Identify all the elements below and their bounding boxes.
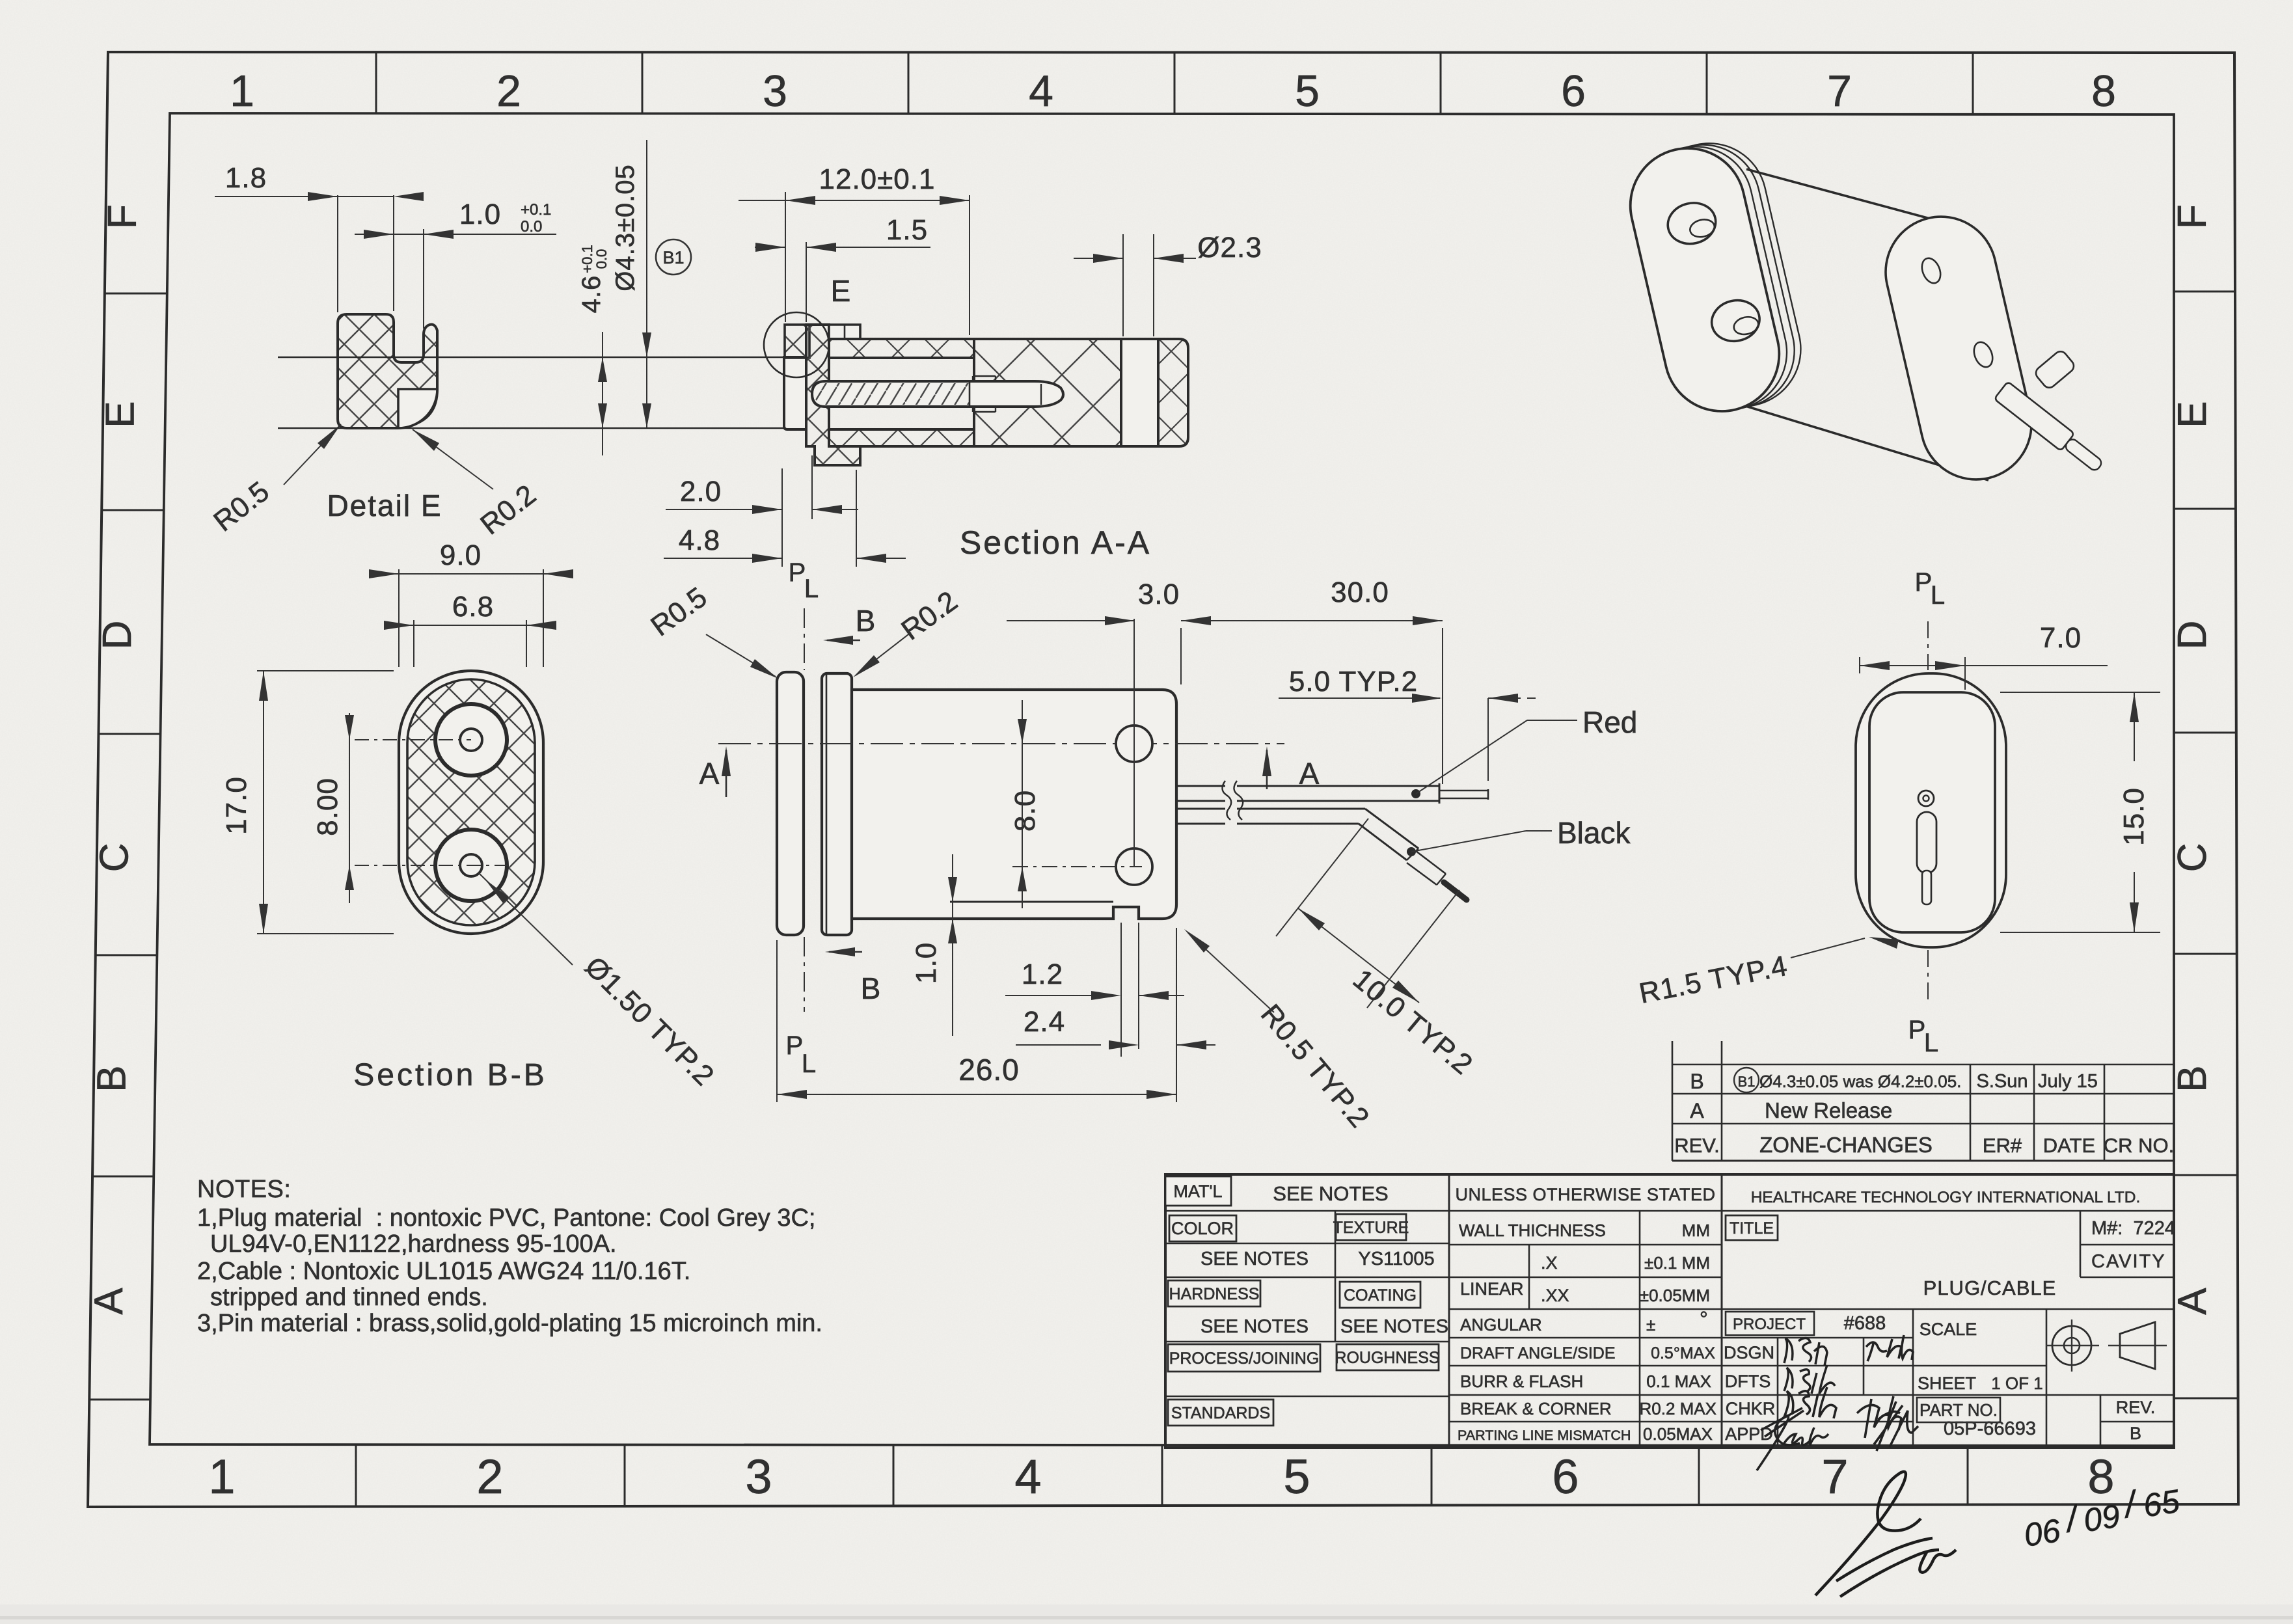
svg-text:1.0: 1.0 [910,942,942,984]
svg-text:DFTS: DFTS [1725,1372,1771,1391]
svg-text:Detail E: Detail E [327,489,442,522]
svg-text:3: 3 [763,66,787,116]
svg-text:B: B [861,971,881,1005]
svg-text:E: E [2170,401,2215,427]
svg-text:8: 8 [2087,1450,2114,1504]
svg-text:REV.: REV. [1674,1134,1720,1157]
svg-text:L: L [1931,581,1945,610]
svg-text:6.8: 6.8 [452,591,494,623]
svg-text:P: P [1915,568,1933,597]
svg-text:3,Pin material : brass,solid,g: 3,Pin material : brass,solid,gold-platin… [197,1310,822,1337]
svg-text:7.0: 7.0 [2040,622,2082,654]
svg-text:R0.2 MAX: R0.2 MAX [1640,1399,1717,1418]
svg-text:D: D [2170,621,2215,650]
svg-text:New Release: New Release [1765,1098,1892,1122]
svg-text:REV.: REV. [2116,1398,2156,1417]
svg-text:1 OF 1: 1 OF 1 [1991,1374,2042,1393]
svg-text:1: 1 [208,1450,235,1504]
svg-text:TITLE: TITLE [1730,1219,1774,1238]
svg-text:6: 6 [1552,1450,1579,1504]
svg-text:stripped and tinned ends.: stripped and tinned ends. [210,1284,488,1311]
svg-text:ANGULAR: ANGULAR [1460,1315,1542,1334]
svg-text:A: A [2170,1288,2215,1315]
svg-text:UNLESS OTHERWISE STATED: UNLESS OTHERWISE STATED [1455,1185,1715,1204]
svg-text:+0.1: +0.1 [521,201,551,219]
svg-text:C: C [92,843,137,873]
svg-text:MAT'L: MAT'L [1173,1182,1222,1201]
svg-text:3: 3 [745,1450,772,1504]
svg-text:Black: Black [1557,816,1631,850]
svg-text:A: A [87,1288,131,1315]
svg-text:MM: MM [1682,1221,1710,1240]
svg-text:DATE: DATE [2043,1134,2095,1157]
svg-text:DRAFT ANGLE/SIDE: DRAFT ANGLE/SIDE [1460,1344,1616,1362]
svg-text:F: F [100,204,145,229]
svg-text:4: 4 [1014,1450,1041,1504]
svg-text:P: P [1908,1016,1926,1044]
svg-text:A: A [1690,1099,1704,1122]
svg-text:°: ° [1700,1307,1708,1331]
svg-text:E: E [831,274,851,308]
svg-text:CHKR: CHKR [1726,1399,1776,1418]
svg-text:30.0: 30.0 [1331,576,1389,608]
svg-text:DSGN: DSGN [1724,1343,1774,1362]
svg-text:July 15: July 15 [2038,1071,2098,1092]
svg-text:COATING: COATING [1344,1286,1417,1305]
svg-text:PARTING LINE MISMATCH: PARTING LINE MISMATCH [1458,1428,1631,1443]
svg-text:C: C [2170,843,2215,873]
svg-text:8.00: 8.00 [312,778,344,836]
svg-text:B: B [89,1065,134,1092]
svg-text:3.0: 3.0 [1138,578,1180,610]
svg-text:2.0: 2.0 [680,476,722,507]
svg-text:ER#: ER# [1983,1134,2022,1157]
svg-text:8.0: 8.0 [1009,790,1041,832]
svg-text:2: 2 [496,66,521,116]
svg-text:17.0: 17.0 [221,776,252,835]
svg-text:0.0: 0.0 [593,249,610,269]
svg-text:L: L [802,1049,816,1078]
svg-text:ROUGHNESS: ROUGHNESS [1335,1349,1439,1367]
svg-text:0.0: 0.0 [521,218,542,236]
svg-text:1.8: 1.8 [225,162,267,194]
svg-text:5: 5 [1295,66,1320,116]
svg-text:B1: B1 [662,248,684,267]
svg-text:S.Sun: S.Sun [1977,1071,2028,1092]
svg-text:#688: #688 [1844,1313,1886,1334]
svg-text:0.05MAX: 0.05MAX [1643,1424,1713,1444]
svg-text:05P-66693: 05P-66693 [1944,1418,2036,1439]
svg-text:WALL THICHNESS: WALL THICHNESS [1459,1221,1606,1240]
svg-text:09: 09 [2081,1497,2123,1539]
svg-text:E: E [98,401,142,427]
svg-text:PROJECT: PROJECT [1733,1316,1806,1333]
svg-text:CR NO.: CR NO. [2104,1134,2175,1157]
svg-text:Section A-A: Section A-A [960,524,1151,561]
svg-text:4.8: 4.8 [679,524,720,556]
svg-text:7: 7 [1827,66,1852,116]
svg-text:SHEET: SHEET [1918,1374,1976,1393]
svg-text:2: 2 [476,1450,503,1504]
svg-text:LINEAR: LINEAR [1460,1279,1524,1299]
svg-text:P: P [789,558,806,587]
svg-text:STANDARDS: STANDARDS [1171,1404,1270,1422]
svg-text:Section B-B: Section B-B [353,1058,547,1092]
svg-text:A: A [699,757,720,791]
svg-text:SCALE: SCALE [1920,1319,1977,1339]
svg-text:1.2: 1.2 [1022,958,1063,990]
svg-text:0.5°MAX: 0.5°MAX [1651,1344,1715,1362]
svg-text:1: 1 [230,66,254,116]
svg-text:BREAK & CORNER: BREAK & CORNER [1460,1399,1612,1418]
svg-text:2,Cable : Nontoxic UL1015 AWG2: 2,Cable : Nontoxic UL1015 AWG24 11/0.16T… [197,1258,690,1285]
svg-text:B: B [2130,1424,2141,1443]
svg-text:PART NO.: PART NO. [1920,1400,1998,1420]
svg-text:B: B [1690,1070,1703,1093]
svg-text:B1: B1 [1738,1074,1756,1090]
svg-text:SEE NOTES: SEE NOTES [1201,1249,1309,1269]
svg-text:B: B [856,604,876,638]
svg-text:Red: Red [1582,705,1637,739]
svg-text:9.0: 9.0 [440,539,482,571]
svg-text:±0.05MM: ±0.05MM [1640,1286,1710,1305]
svg-text:PLUG/CABLE: PLUG/CABLE [1923,1277,2057,1299]
svg-text:B: B [2170,1065,2215,1092]
svg-text:6: 6 [1561,66,1586,116]
svg-text:65: 65 [2141,1483,2182,1524]
svg-text:NOTES:: NOTES: [197,1176,291,1203]
svg-text:Ø4.3±0.05: Ø4.3±0.05 [611,164,640,291]
svg-text:±0.1 MM: ±0.1 MM [1644,1253,1710,1273]
svg-text:Ø2.3: Ø2.3 [1197,232,1262,264]
svg-text:L: L [1924,1029,1938,1057]
svg-text:SEE NOTES: SEE NOTES [1340,1316,1448,1337]
svg-text:SEE NOTES: SEE NOTES [1201,1316,1309,1337]
svg-text:COLOR: COLOR [1171,1219,1234,1238]
svg-text:YS11005: YS11005 [1358,1249,1434,1269]
svg-text:ZONE-CHANGES: ZONE-CHANGES [1759,1133,1933,1157]
svg-text:12.0±0.1: 12.0±0.1 [819,163,936,195]
svg-text:26.0: 26.0 [958,1053,1020,1087]
svg-text:5.0 TYP.2: 5.0 TYP.2 [1289,666,1418,697]
svg-text:7: 7 [1821,1450,1848,1504]
svg-text:UL94V-0,EN1122,hardness 95-100: UL94V-0,EN1122,hardness 95-100A. [210,1230,617,1258]
svg-text:.XX: .XX [1541,1286,1569,1305]
svg-text:4: 4 [1029,66,1053,116]
svg-text:1,Plug material : nontoxic PV: 1,Plug material : nontoxic PVC, Pantone:… [197,1204,815,1232]
svg-text:F: F [2170,204,2215,229]
svg-text:D: D [95,621,140,650]
svg-text:8: 8 [2091,66,2116,116]
svg-text:1.0: 1.0 [459,198,501,230]
svg-text:2.4: 2.4 [1024,1006,1065,1038]
svg-text:0.1 MAX: 0.1 MAX [1646,1372,1711,1391]
svg-text:PROCESS/JOINING: PROCESS/JOINING [1169,1349,1320,1368]
svg-text:4.6: 4.6 [577,275,606,314]
svg-text:P: P [786,1031,804,1060]
svg-text:HEALTHCARE TECHNOLOGY INTERNAT: HEALTHCARE TECHNOLOGY INTERNATIONAL LTD. [1751,1189,2141,1206]
svg-text:M#: 7224: M#: 7224 [2091,1218,2175,1239]
svg-text:L: L [804,575,819,603]
svg-text:Ø4.3±0.05 was Ø4.2±0.05.: Ø4.3±0.05 was Ø4.2±0.05. [1759,1072,1961,1091]
svg-text:15.0: 15.0 [2118,787,2150,846]
svg-text:5: 5 [1283,1450,1310,1504]
svg-text:06: 06 [2022,1512,2063,1554]
svg-text:±: ± [1646,1315,1655,1334]
svg-text:CAVITY: CAVITY [2091,1251,2166,1272]
svg-text:TEXTURE: TEXTURE [1333,1219,1409,1237]
svg-text:SEE NOTES: SEE NOTES [1273,1182,1388,1205]
svg-text:HARDNESS: HARDNESS [1169,1285,1260,1303]
svg-text:1.5: 1.5 [886,214,928,246]
svg-text:BURR & FLASH: BURR & FLASH [1460,1372,1583,1391]
svg-text:.X: .X [1541,1253,1558,1273]
